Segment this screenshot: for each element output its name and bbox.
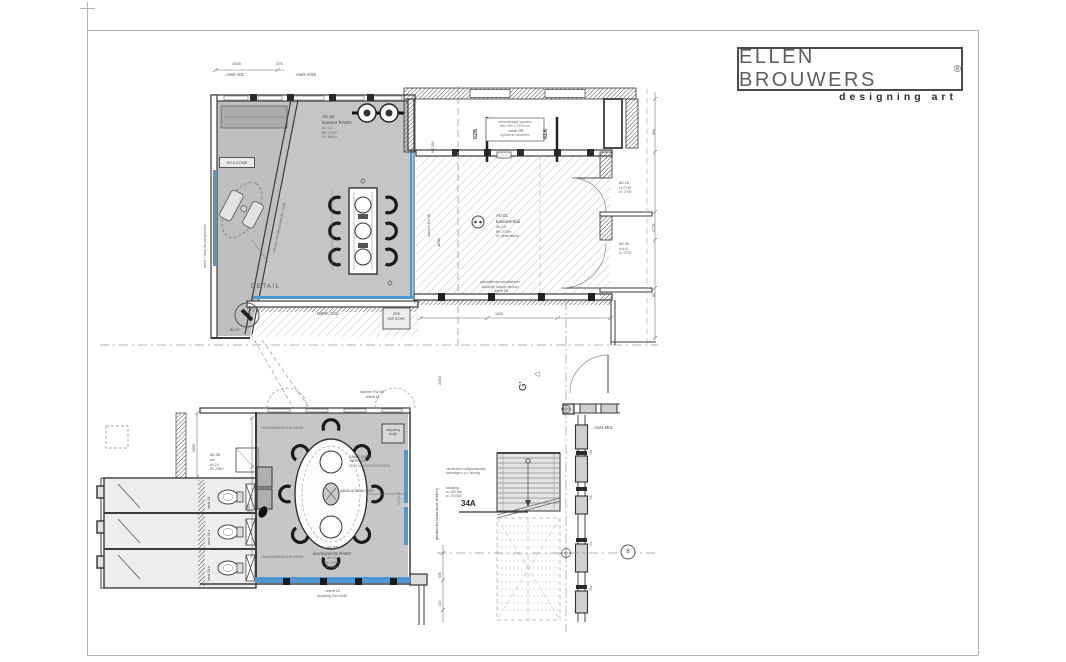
hall-bottom-note: zelfsluitende schuifdeuren automat. nalo… (450, 280, 550, 294)
dim-right-3: 85 (652, 293, 657, 297)
b107-label: B1.07 (230, 328, 240, 333)
hall-label: A0.01 kantorenhal Ah 2,6 BK 2700+ VL (th… (496, 213, 520, 239)
zone-tag: EV.A ZONE (219, 157, 255, 168)
highlight-wall-right-a (404, 450, 408, 503)
stair-label-34a: 34A (461, 499, 476, 509)
hall-dim: 4630 (436, 238, 441, 247)
dim-label-b: 375 (276, 61, 283, 66)
dim-300: 300 (438, 600, 442, 606)
wall-note-left: wcd's + data tbv werkplekken (203, 224, 207, 268)
toilet-block (104, 478, 256, 588)
axis-g-label: G' (517, 381, 530, 391)
gr-note-line: signaleren afwerken (487, 133, 543, 137)
highlight-wall-bottom-lower (255, 577, 409, 583)
lower-top-note: wanden Rw NB . merk 17 (337, 390, 407, 399)
room-spec: BK 2080+ (210, 467, 224, 471)
table-note: CABLE CUBBY TAFELBOX DKW (VLOERDOORVOER) (349, 455, 390, 468)
room-spec: VL 1600+ (322, 135, 352, 140)
axis-62a-label: 62A (543, 129, 550, 139)
dim-small: 100 150 (431, 141, 435, 153)
aansluit-height: h=750+vl (397, 492, 401, 505)
uitsparing-label: uitsparing kozijn (383, 428, 403, 436)
merk-m01-label: . merk M01 (592, 425, 613, 430)
note-line: . merk 17 (337, 395, 407, 400)
window-label-4: 53d (589, 586, 593, 591)
armatuur-note-top: WANDARMATUUR 2400H (262, 426, 303, 431)
cab-box-label: GRK ONTSCHR. (384, 312, 409, 321)
door-middle (570, 355, 608, 393)
facade-corner (563, 404, 620, 414)
drawing-sheet: ELLEN BROUWERS® designing art (0, 0, 1066, 662)
dim-2690: 2690 (192, 444, 197, 452)
room-spec: VL 1600+ (295, 565, 369, 569)
toilet-mark-1: merk 24 (207, 497, 211, 509)
note-line: a= 250/300 (446, 494, 462, 498)
mark-a02s-label: . merk A02s (294, 72, 316, 77)
detail-label: DETAIL (251, 284, 281, 292)
garderobe-note: garderobe (kast door derden) (434, 488, 439, 540)
aansluit-note: AANSLUITBLAD WCD (340, 489, 374, 493)
note-line: beplating Rw=43dB (292, 594, 372, 598)
lower-bottom-note: . merk 23 beplating Rw=43dB (292, 589, 372, 598)
room-spec: h= 2700 (619, 190, 631, 194)
dim-645: 645 (438, 572, 442, 578)
pointer-glyph: ◁ (534, 370, 539, 379)
dim-1425: 1425 (495, 312, 503, 317)
mark-a01-label: . merk A01 (224, 72, 244, 77)
wc-room-label: A0.38 wc Ah 2,6 BK 2080+ (210, 453, 224, 471)
highlight-wall-right-b (404, 507, 408, 545)
dim-right-1: 904 (652, 129, 657, 135)
note-line: kozijn (383, 432, 403, 436)
gr-note: scharnierzijde wisselen afm. 990 x 2315 … (487, 120, 543, 138)
stair-note-1: hernieuwen veiligheidsstrips bevestigen … (446, 467, 486, 475)
office-room-label: A0.18 kantoor RABO Ah 2,6 BK 2700+ VL 16… (322, 114, 352, 140)
floor-plan-svg (0, 0, 1066, 662)
hall-wall-note: wanden Rw NB (427, 214, 431, 237)
cab-box-line: ONTSCHR. (384, 317, 409, 322)
dim-2053: 2053 (437, 376, 442, 385)
window-label-2: 53b (589, 495, 593, 500)
toilet-mark-3: merk 24 b (207, 566, 211, 581)
dim-right-2: 1775 (652, 224, 657, 232)
merk-g02-label: MERK G02 (317, 311, 338, 316)
note-line: DKW (VLOERDOORVOER) (349, 464, 390, 468)
room-spec: h= 2700 (619, 251, 631, 255)
toilet-mark-2: merk 24 a (207, 530, 211, 545)
axis-8-label: 8 (622, 546, 634, 558)
room-spec: VL (thermisch) (496, 234, 520, 239)
dim-label-a: 1945 (232, 61, 241, 66)
meeting-room-label: A0.37 overlegruimte RABO Ah 2,6 BK 2700+… (295, 545, 369, 569)
staircase (459, 453, 560, 620)
room-a029-label: A0.29 m.k B h= 2700 (619, 242, 631, 256)
hall-bottom-line: . merk 16 (450, 289, 550, 294)
note-line: bevestigen t.p.v. leuning (446, 471, 486, 475)
stair-note-2: belasting b= 180 mm a= 250/300 (446, 486, 462, 498)
window-label-3: 53c (589, 541, 593, 546)
room-a016-label: A0.16 l.k C+W h= 2700 (619, 181, 631, 195)
shafts (246, 484, 255, 581)
upper-plan (211, 68, 657, 347)
axis-62b-label: 62B (473, 129, 480, 139)
window-label-1: 53a (589, 450, 593, 455)
right-facade (566, 300, 588, 632)
dim-3050: 3050 (247, 504, 252, 512)
